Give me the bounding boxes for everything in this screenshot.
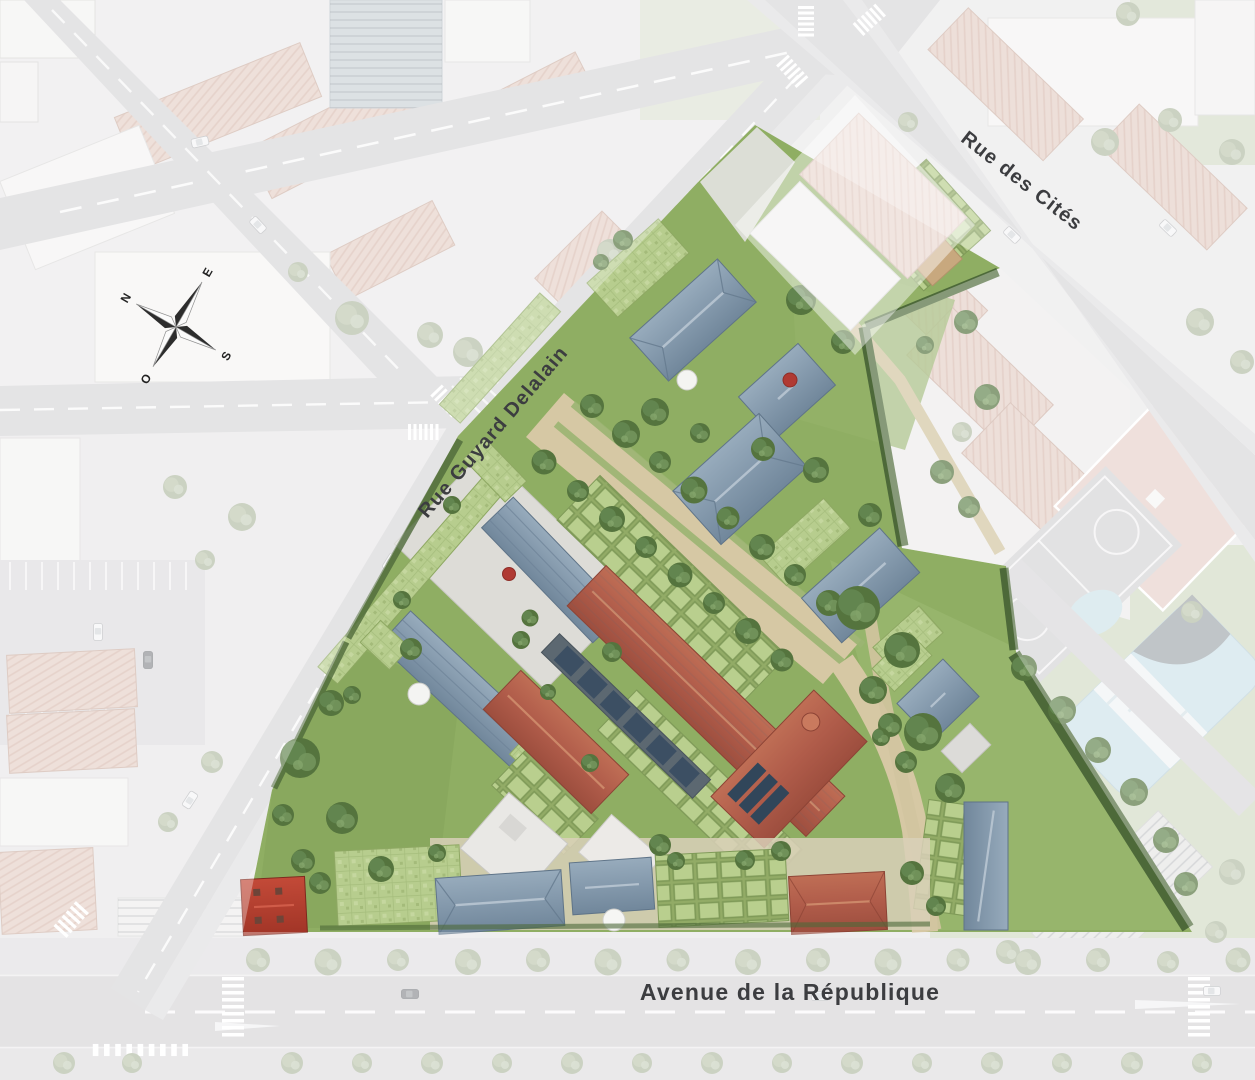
- white-parasol: [408, 683, 430, 705]
- masterplan-stage: N E S O Rue des Cités Rue Guyard Delalai…: [0, 0, 1255, 1080]
- red-parasol: [503, 568, 516, 581]
- building-south-2: [569, 857, 654, 915]
- street-label-avenue-de-la-republique: Avenue de la République: [640, 979, 940, 1005]
- site-plan-map: N E S O Rue des Cités Rue Guyard Delalai…: [0, 0, 1255, 1080]
- white-parasol: [677, 370, 697, 390]
- red-parasol: [783, 373, 797, 387]
